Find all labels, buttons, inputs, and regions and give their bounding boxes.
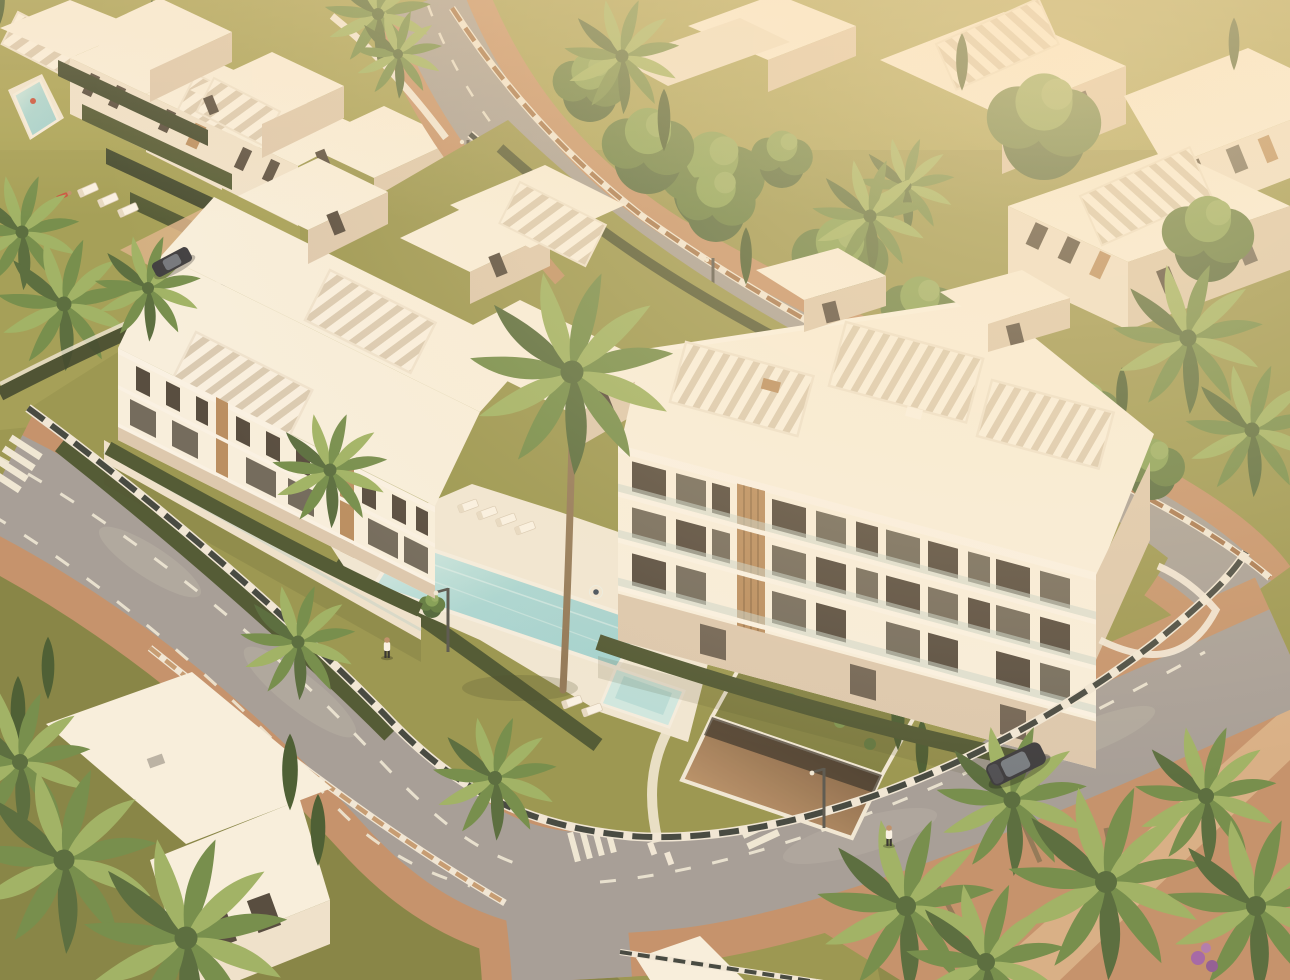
light-overlays [0, 0, 1290, 980]
aerial-render: Aerial golden-hour render of a modern wh… [0, 0, 1290, 980]
warm-tint [0, 0, 1290, 980]
